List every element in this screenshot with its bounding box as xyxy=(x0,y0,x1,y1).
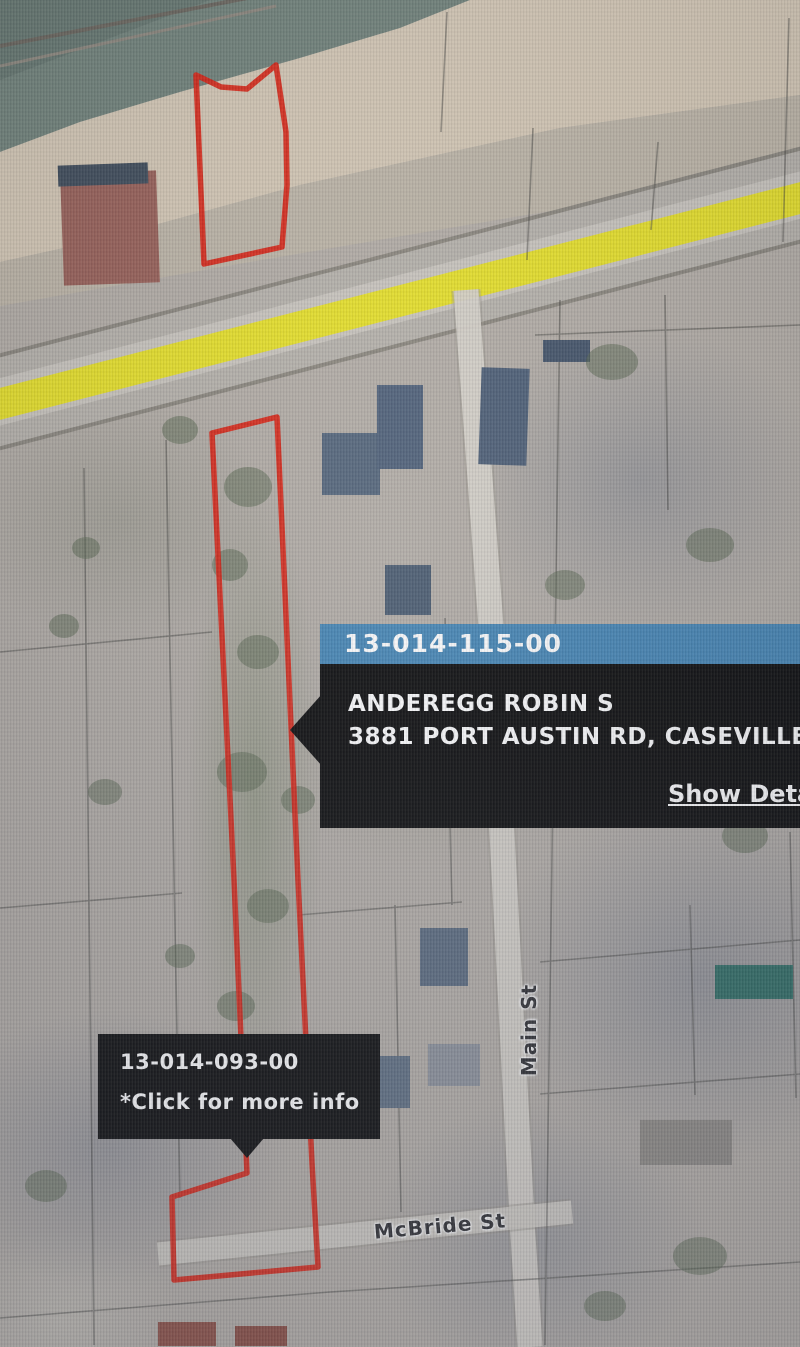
street-label-main: Main St xyxy=(517,984,541,1076)
tooltip-hint: *Click for more info xyxy=(120,1089,370,1115)
popup-card: 13-014-115-00 ANDEREGG ROBIN S 3881 PORT… xyxy=(320,624,800,828)
parcel-tooltip[interactable]: 13-014-093-00 *Click for more info xyxy=(98,1034,380,1139)
popup-parcel-id: 13-014-115-00 xyxy=(344,629,562,658)
tooltip-parcel-id: 13-014-093-00 xyxy=(120,1049,370,1075)
popup-body: ANDEREGG ROBIN S 3881 PORT AUSTIN RD, CA… xyxy=(320,664,800,828)
popup-address: 3881 PORT AUSTIN RD, CASEVILLE xyxy=(348,721,800,754)
popup-owner-name: ANDEREGG ROBIN S xyxy=(348,688,800,721)
tree-canopy xyxy=(25,344,768,1321)
popup-header: 13-014-115-00 xyxy=(320,624,800,664)
popup-pointer xyxy=(290,694,322,766)
gis-map-viewer[interactable]: McBride St Main St 13-014-093-00 *Click … xyxy=(0,0,800,1347)
tooltip-pointer xyxy=(230,1138,264,1158)
show-details-link[interactable]: Show Details xyxy=(668,780,800,808)
